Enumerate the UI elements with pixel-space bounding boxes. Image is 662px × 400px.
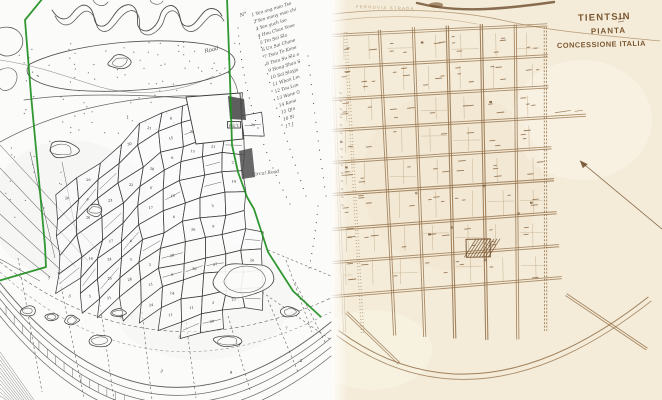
svg-text:20: 20 xyxy=(249,258,254,263)
left-map-panel: 2629626145231724252130226326212861731124… xyxy=(0,0,332,400)
svg-text:24: 24 xyxy=(149,303,154,307)
svg-text:3: 3 xyxy=(149,263,151,267)
svg-text:23: 23 xyxy=(108,198,113,202)
scan-edge-fade xyxy=(332,0,348,400)
svg-text:22: 22 xyxy=(129,183,133,187)
rct-label: R.C.T. xyxy=(229,124,238,128)
svg-text:17: 17 xyxy=(109,239,114,243)
screenshot-canvas: 2629626145231724252130226326212861731124… xyxy=(0,0,662,400)
svg-text:29: 29 xyxy=(86,178,90,182)
svg-text:9: 9 xyxy=(212,224,215,228)
svg-text:24: 24 xyxy=(107,257,112,262)
tientsin-concession-map: TIENTSIN PIANTA CONCESSIONE ITALIA FERRO… xyxy=(332,0,662,400)
svg-text:17: 17 xyxy=(149,206,153,210)
svg-text:14: 14 xyxy=(88,257,93,261)
svg-text:15: 15 xyxy=(190,149,195,153)
svg-text:14: 14 xyxy=(232,180,237,184)
cadastral-plot-map: 2629626145231724252130226326212861731124… xyxy=(0,0,332,400)
map-title-line-1: TIENTSIN xyxy=(578,11,631,24)
svg-text:11: 11 xyxy=(189,306,194,310)
svg-text:6: 6 xyxy=(170,116,172,120)
svg-text:26: 26 xyxy=(191,228,196,232)
right-map-panel: TIENTSIN PIANTA CONCESSIONE ITALIA FERRO… xyxy=(332,0,662,400)
svg-text:21: 21 xyxy=(211,144,216,149)
svg-text:26: 26 xyxy=(86,215,91,219)
svg-text:26: 26 xyxy=(127,277,132,282)
svg-text:5: 5 xyxy=(89,294,91,298)
svg-text:14: 14 xyxy=(170,291,175,295)
svg-text:26: 26 xyxy=(65,196,69,200)
map-title-line-2: PIANTA xyxy=(591,26,626,36)
